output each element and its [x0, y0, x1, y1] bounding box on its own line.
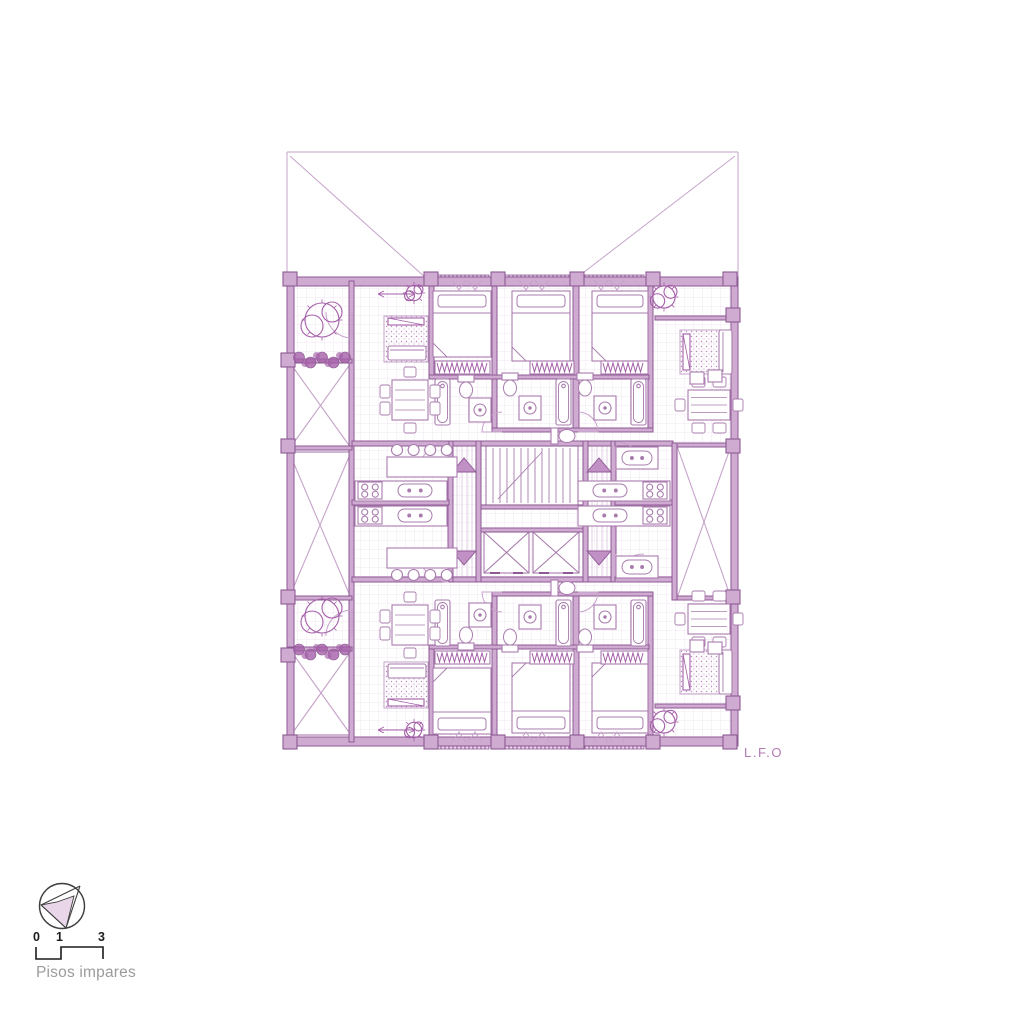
bed [512, 663, 570, 733]
side-table [690, 640, 704, 652]
toilet [460, 627, 473, 643]
wall [492, 281, 497, 432]
column [283, 735, 297, 749]
toilet [559, 582, 575, 595]
toilet [502, 645, 518, 652]
wall [287, 277, 738, 286]
double-sink-faucet [603, 489, 606, 492]
toilet [458, 375, 474, 382]
toilet [551, 428, 558, 444]
wall [448, 577, 615, 582]
scale-bar: 0 1 3 [36, 930, 116, 964]
chair [430, 385, 440, 398]
bar-stool [392, 570, 403, 581]
column [281, 353, 295, 367]
bar-stool [425, 445, 436, 456]
chair [404, 367, 416, 377]
floor-plan-drawing [0, 0, 1024, 1024]
chair [380, 402, 390, 415]
bar-counter [387, 457, 457, 477]
toilet [458, 643, 474, 650]
bar-stool [425, 570, 436, 581]
chair [430, 627, 440, 640]
wall [573, 281, 579, 432]
chair [713, 423, 726, 433]
wall [492, 592, 497, 743]
toilet [502, 373, 518, 380]
double-sink-faucet [641, 566, 644, 569]
bar-counter [387, 548, 457, 568]
chair [380, 385, 390, 398]
wall [287, 737, 738, 746]
column [281, 439, 295, 453]
side-table [690, 372, 704, 384]
lot-line [575, 156, 735, 279]
chair [713, 591, 726, 601]
wall [448, 441, 615, 446]
planter [325, 652, 332, 659]
wall [655, 704, 732, 708]
column [281, 590, 295, 604]
column [570, 272, 584, 286]
sofa [388, 664, 426, 678]
chair [430, 610, 440, 623]
sink-faucet [479, 614, 481, 616]
double-sink [398, 509, 432, 522]
column [570, 735, 584, 749]
column [283, 272, 297, 286]
chair [692, 423, 705, 433]
sofa [719, 650, 732, 694]
planter [313, 352, 320, 359]
chair [404, 592, 416, 602]
double-sink-faucet [614, 514, 617, 517]
stove [358, 507, 382, 524]
double-sink-faucet [408, 514, 411, 517]
column [726, 590, 740, 604]
chair [675, 613, 685, 625]
bed [433, 291, 491, 357]
toilet [559, 430, 575, 443]
wall [672, 443, 732, 447]
column [726, 308, 740, 322]
sofa [719, 330, 732, 374]
column [281, 648, 295, 662]
toilet [551, 580, 558, 596]
chair [380, 610, 390, 623]
column [646, 272, 660, 286]
bar-stool [408, 570, 419, 581]
stove [643, 482, 667, 499]
plan-orientation-label: L.F.O [744, 745, 783, 760]
toilet [579, 629, 592, 645]
double-sink-faucet [419, 489, 422, 492]
bed [512, 291, 570, 361]
scale-bar-graphic [34, 945, 112, 963]
wall [481, 528, 583, 532]
bed [433, 668, 491, 734]
toilet [504, 629, 517, 645]
wall [349, 281, 354, 742]
chair [675, 399, 685, 411]
column [726, 439, 740, 453]
scale-tick-0: 0 [33, 930, 40, 944]
double-sink-faucet [408, 489, 411, 492]
bed [592, 291, 648, 361]
double-sink-faucet [631, 566, 634, 569]
double-sink-faucet [641, 457, 644, 460]
floor-level-label: Pisos impares [36, 964, 136, 982]
bar-stool [408, 445, 419, 456]
column [723, 272, 737, 286]
chair [733, 399, 743, 411]
bed [592, 663, 648, 733]
chair [430, 402, 440, 415]
wall [672, 443, 677, 600]
double-sink-faucet [614, 489, 617, 492]
bar-stool [392, 445, 403, 456]
double-sink [622, 560, 652, 574]
sink-faucet [529, 616, 531, 618]
column [491, 735, 505, 749]
floor-plan: L.F.O [0, 0, 1024, 1024]
double-sink [593, 509, 627, 522]
chair [380, 627, 390, 640]
planter [325, 360, 332, 367]
toilet [579, 380, 592, 396]
bar-stool [441, 570, 452, 581]
toilet [460, 382, 473, 398]
side-table [708, 642, 722, 654]
double-sink-faucet [603, 514, 606, 517]
column [726, 696, 740, 710]
column [723, 735, 737, 749]
chair [692, 591, 705, 601]
column [646, 735, 660, 749]
stove [643, 507, 667, 524]
wall [287, 277, 294, 746]
chair [404, 648, 416, 658]
wall [655, 316, 732, 320]
sink-faucet [479, 409, 481, 411]
lot-line [290, 156, 427, 279]
toilet [577, 373, 593, 380]
planter [302, 360, 309, 367]
wall [476, 441, 481, 582]
toilet [577, 645, 593, 652]
scale-tick-1: 1 [56, 930, 63, 944]
scale-tick-3: 3 [98, 930, 105, 944]
sink-faucet [604, 616, 606, 618]
wall [481, 505, 583, 509]
bar-stool [441, 445, 452, 456]
sink-faucet [604, 407, 606, 409]
double-sink-faucet [631, 457, 634, 460]
planter [336, 644, 343, 651]
sink-faucet [529, 407, 531, 409]
column [424, 272, 438, 286]
planter [336, 352, 343, 359]
sofa [388, 346, 426, 360]
north-arrow-icon [34, 882, 90, 936]
column [491, 272, 505, 286]
wall [287, 446, 352, 450]
planter [313, 644, 320, 651]
double-sink [398, 484, 432, 497]
double-sink [593, 484, 627, 497]
chair [733, 613, 743, 625]
chair [404, 423, 416, 433]
double-sink-faucet [419, 514, 422, 517]
planter [302, 652, 309, 659]
double-sink [622, 451, 652, 465]
stove [358, 482, 382, 499]
side-table [708, 370, 722, 382]
toilet [504, 380, 517, 396]
column [424, 735, 438, 749]
wall [573, 592, 579, 743]
